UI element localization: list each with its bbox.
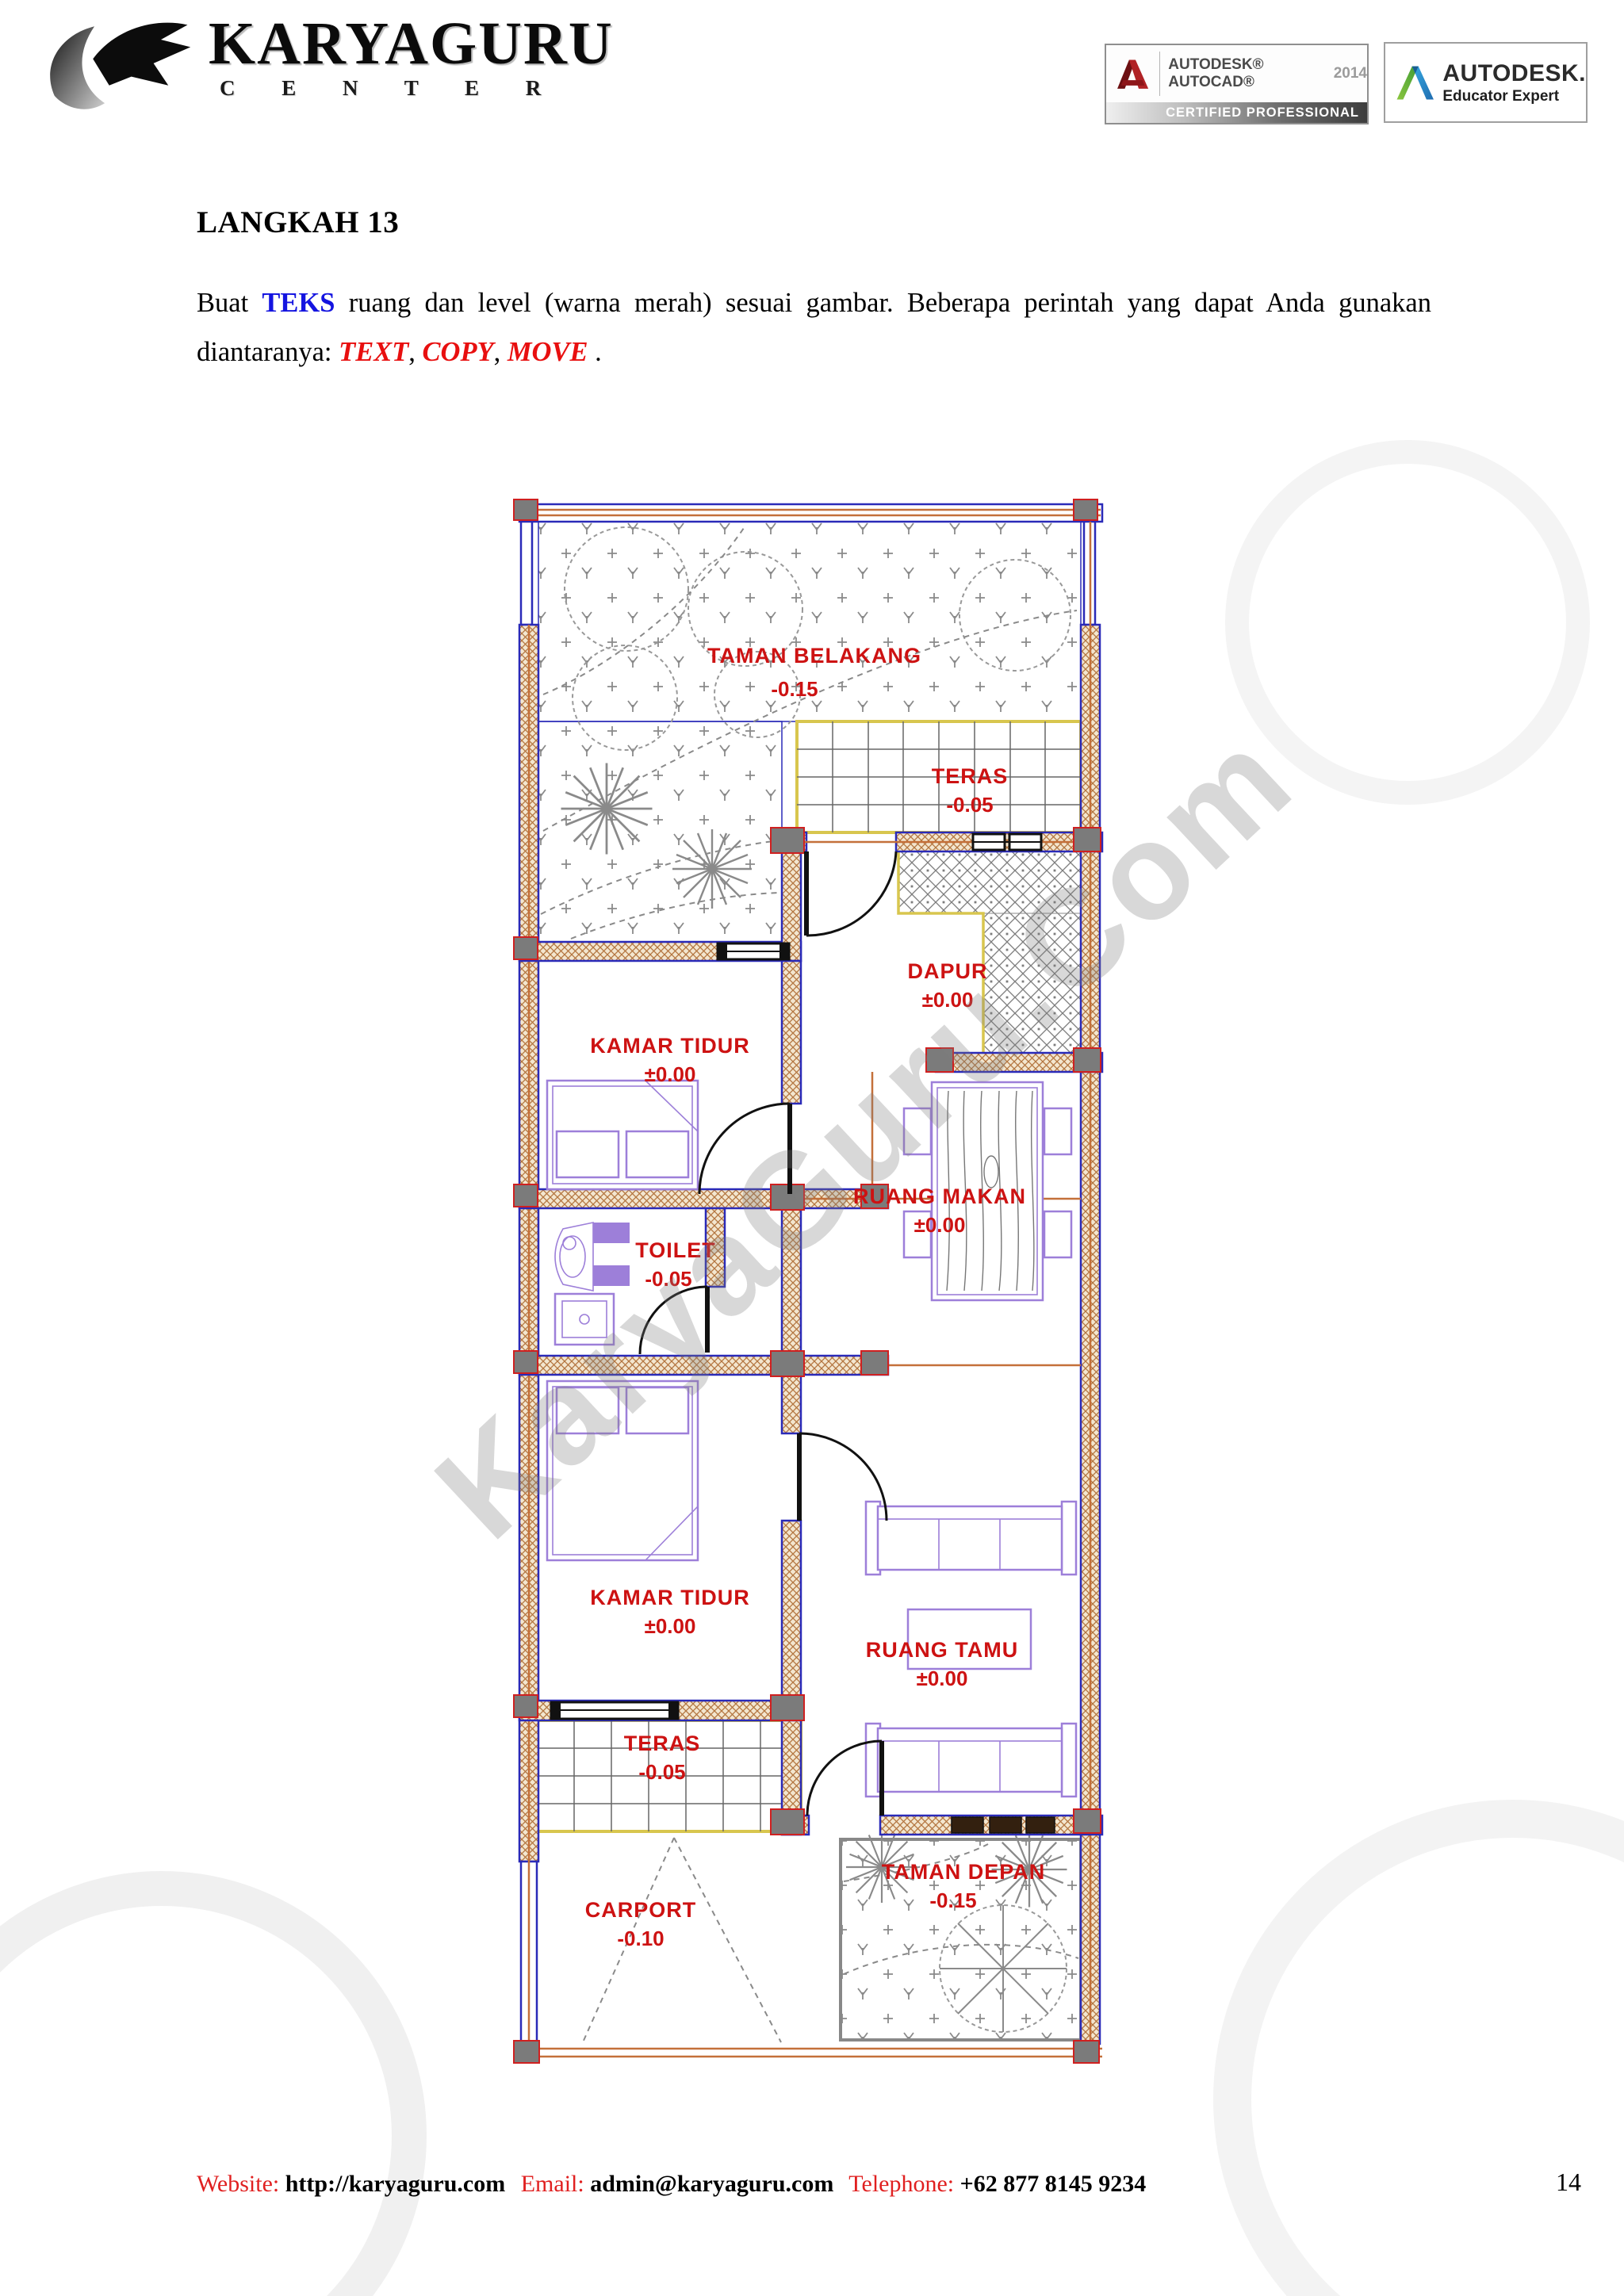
level-toilet: -0.05 [645,1267,691,1291]
teks-emphasis: TEKS [262,288,335,318]
autocad-certified-badge: AUTODESK® AUTOCAD® 2014 CERTIFIED PROFES… [1105,44,1369,124]
label-teras-lower: TERAS [624,1732,701,1755]
para-tail: . [588,337,602,367]
bird-logo-icon [41,13,204,132]
floorplan-canvas: TAMAN BELAKANG -0.15 TERAS -0.05 DAPUR ±… [507,498,1110,2084]
label-teras-upper: TERAS [932,764,1009,788]
website-label: Website: [197,2171,279,2197]
label-toilet: TOILET [635,1238,716,1262]
door-bedroom1 [699,1104,790,1194]
autodesk-logo-icon [1393,59,1436,105]
label-carport: CARPORT [585,1898,697,1922]
label-taman-depan: TAMAN DEPAN [882,1860,1046,1884]
document-page: KARYAGURU C E N T E R AUTODESK® AUTOCAD®… [0,0,1624,2296]
label-taman-belakang: TAMAN BELAKANG [707,644,921,668]
level-ruang-tamu: ±0.00 [917,1667,968,1690]
window-bedroom2 [551,1702,678,1719]
round-tree [940,1905,1067,2032]
level-dapur: ±0.00 [922,988,974,1012]
dapur-counter [898,851,1081,1053]
bed-kamar-tidur-2 [547,1381,698,1560]
telephone-label: Telephone: [848,2171,954,2197]
page-footer: Website: http://karyaguru.com Email: adm… [197,2171,1155,2198]
command-text: TEXT [339,337,408,367]
badge2-brand: AUTODESK. [1442,60,1586,86]
badge2-subtitle: Educator Expert [1442,88,1586,105]
email-value: admin@karyaguru.com [590,2171,833,2197]
autodesk-educator-badge: AUTODESK. Educator Expert [1384,42,1588,123]
level-taman-depan: -0.15 [929,1888,976,1912]
logo-subtitle: C E N T E R [209,76,614,101]
watermark-swirl [1225,440,1590,805]
floorplan-figure: TAMAN BELAKANG -0.15 TERAS -0.05 DAPUR ±… [507,498,1110,2084]
level-kamar-tidur-2: ±0.00 [645,1614,696,1638]
window-ruang-tamu [952,1817,1055,1833]
level-carport: -0.10 [617,1927,664,1950]
carport-area [583,1838,781,2042]
label-kamar-tidur-2: KAMAR TIDUR [590,1586,749,1609]
para-lead: Buat [197,288,262,318]
level-teras-upper: -0.05 [946,793,993,817]
badge-year: 2014 [1334,65,1367,82]
command-move: MOVE [507,337,588,367]
telephone-value: +62 877 8145 9234 [960,2171,1147,2197]
level-teras-lower: -0.05 [638,1760,685,1784]
label-ruang-makan: RUANG MAKAN [853,1184,1026,1208]
badge-brand-line: AUTODESK® AUTOCAD® [1168,56,1328,91]
instruction-paragraph: Buat TEKS ruang dan level (warna merah) … [197,279,1431,377]
certified-professional-label: CERTIFIED PROFESSIONAL [1166,105,1359,121]
page-number: 14 [1556,2168,1581,2197]
label-dapur: DAPUR [907,959,987,983]
level-ruang-makan: ±0.00 [914,1213,966,1237]
doors [640,851,896,1816]
windows [551,834,1055,1833]
toilet-fixtures [555,1223,630,1345]
website-value: http://karyaguru.com [285,2171,506,2197]
door-toilet [640,1287,707,1354]
level-taman-belakang: -0.15 [771,677,818,701]
bed-kamar-tidur-1 [547,1081,698,1189]
door-teras-dapur [806,851,896,936]
email-label: Email: [521,2171,584,2197]
page-title: LANGKAH 13 [197,205,399,240]
separator: , [494,337,507,367]
karyaguru-logo: KARYAGURU C E N T E R [41,13,614,132]
logo-brand: KARYAGURU [209,13,614,76]
command-copy: COPY [423,337,494,367]
window-bedroom1 [718,943,789,959]
level-kamar-tidur-1: ±0.00 [645,1062,696,1086]
label-ruang-tamu: RUANG TAMU [866,1638,1018,1662]
autodesk-a-icon [1114,53,1153,94]
watermark-swirl [1213,1800,1624,2296]
separator: , [408,337,422,367]
label-kamar-tidur-1: KAMAR TIDUR [590,1034,749,1058]
watermark-swirl [0,1871,427,2296]
